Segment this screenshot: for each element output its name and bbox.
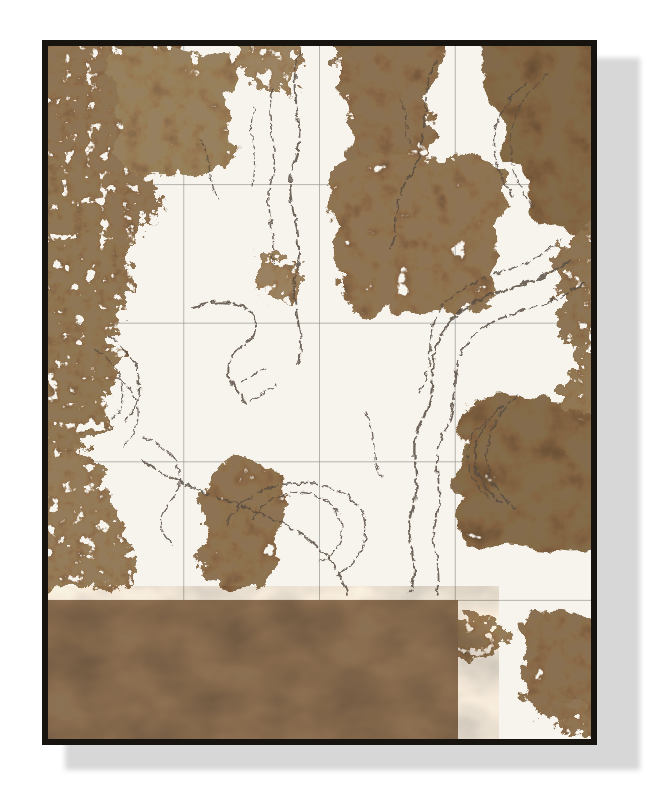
foliage-mass-right-low-block bbox=[455, 396, 591, 552]
art-frame bbox=[42, 40, 597, 745]
foliage-mass-center-right bbox=[327, 155, 506, 318]
foliage-mass-center-low bbox=[201, 457, 286, 591]
product-photo-background: { "photo": { "alt": "Framed abstract wal… bbox=[0, 0, 648, 800]
foliage-mass-top-left-lobe bbox=[108, 49, 239, 177]
bronze-band-texture bbox=[48, 600, 458, 739]
artwork-canvas bbox=[48, 46, 591, 739]
